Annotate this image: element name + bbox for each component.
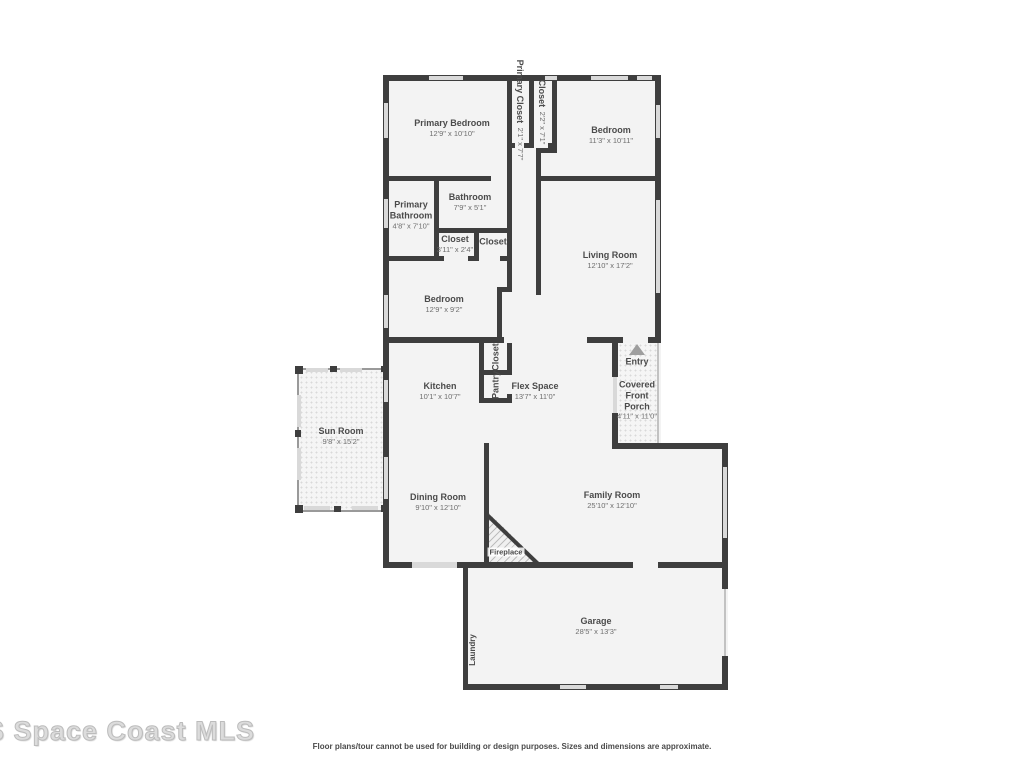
wall-segment — [383, 337, 504, 343]
sunroom-window-marker — [297, 448, 301, 480]
sunroom-window-marker — [340, 368, 362, 372]
room-label-fireplace: Fireplace — [488, 548, 525, 557]
window-marker — [656, 200, 660, 293]
room-label-covered-front-porch: Covered Front Porch 4'11" x 11'0" — [612, 379, 662, 420]
floor-plan: Primary Bedroom 12'9" x 10'10" Primary C… — [0, 0, 1024, 768]
room-label-closet-top: Closet 2'2" x 7'1" — [533, 80, 551, 145]
sunroom-post — [381, 505, 388, 512]
window-marker — [429, 76, 463, 80]
window-marker — [656, 105, 660, 138]
room-label-flex-space: Flex Space 13'7" x 11'0" — [511, 381, 558, 401]
window-marker — [723, 467, 727, 538]
room-label-primary-bathroom: Primary Bathroom 4'8" x 7'10" — [384, 200, 438, 231]
wall-segment — [497, 290, 502, 343]
room-label-primary-closet: Primary Closet 2'1" x 7'7" — [511, 60, 529, 161]
sunroom-post — [381, 366, 388, 372]
wall-segment — [463, 684, 728, 690]
room-label-bedroom-mid: Bedroom 12'9" x 9'2" — [424, 294, 464, 314]
sunroom-post — [334, 506, 341, 512]
window-marker — [412, 562, 457, 568]
window-marker — [384, 295, 388, 328]
window-marker — [384, 457, 388, 499]
room-label-garage: Garage 28'5" x 13'3" — [575, 616, 616, 636]
sunroom-post — [295, 505, 303, 513]
room-label-closet-hall: Closet 3'11" x 2'4" — [437, 234, 473, 254]
wall-segment — [722, 656, 728, 690]
room-label-bedroom-top: Bedroom 11'3" x 10'11" — [589, 125, 633, 145]
window-marker — [384, 103, 388, 138]
screen-line — [724, 589, 726, 656]
room-label-dining-room: Dining Room 9'10" x 12'10" — [410, 492, 466, 512]
wall-segment — [612, 443, 728, 449]
room-label-closet-kitchen: Closet — [491, 343, 502, 371]
wall-segment — [612, 343, 618, 377]
room-label-primary-bedroom: Primary Bedroom 12'9" x 10'10" — [414, 118, 490, 138]
wall-segment — [536, 176, 541, 295]
wall-segment — [507, 258, 512, 292]
wall-segment — [457, 562, 633, 568]
entry-arrow-icon — [629, 344, 645, 355]
window-marker — [660, 685, 678, 689]
room-label-bathroom: Bathroom 7'9" x 5'1" — [449, 192, 492, 212]
room-label-sun-room: Sun Room 9'8" x 15'2" — [319, 426, 364, 446]
room-label-entry: Entry — [625, 357, 648, 368]
sunroom-post — [295, 366, 303, 374]
wall-segment — [536, 176, 661, 181]
window-marker — [384, 380, 388, 402]
wall-segment — [552, 75, 557, 147]
wall-segment — [383, 256, 444, 261]
wall-segment — [463, 562, 468, 690]
wall-segment — [434, 228, 512, 233]
wall-segment — [658, 562, 728, 568]
room-label-kitchen: Kitchen 10'1" x 10'7" — [419, 381, 460, 401]
window-marker — [591, 76, 628, 80]
room-label-laundry: Laundry — [468, 634, 478, 666]
room-label-closet-hall2: Closet — [479, 237, 507, 248]
disclaimer-text: Floor plans/tour cannot be used for buil… — [0, 742, 1024, 751]
window-marker — [560, 685, 586, 689]
wall-segment — [383, 562, 412, 568]
sunroom-window-marker — [352, 506, 378, 510]
room-label-pantry: Pantry — [491, 371, 502, 399]
sunroom-post — [295, 430, 301, 437]
wall-segment — [468, 256, 478, 261]
wall-segment — [648, 337, 661, 343]
sunroom-window-marker — [306, 368, 328, 372]
sunroom-post — [330, 366, 337, 372]
room-label-living-room: Living Room 12'10" x 17'2" — [583, 250, 638, 270]
sunroom-window-marker — [304, 506, 330, 510]
wall-segment — [722, 562, 728, 589]
sunroom-window-marker — [297, 395, 301, 427]
window-marker — [637, 76, 652, 80]
room-label-family-room: Family Room 25'10" x 12'10" — [584, 490, 641, 510]
